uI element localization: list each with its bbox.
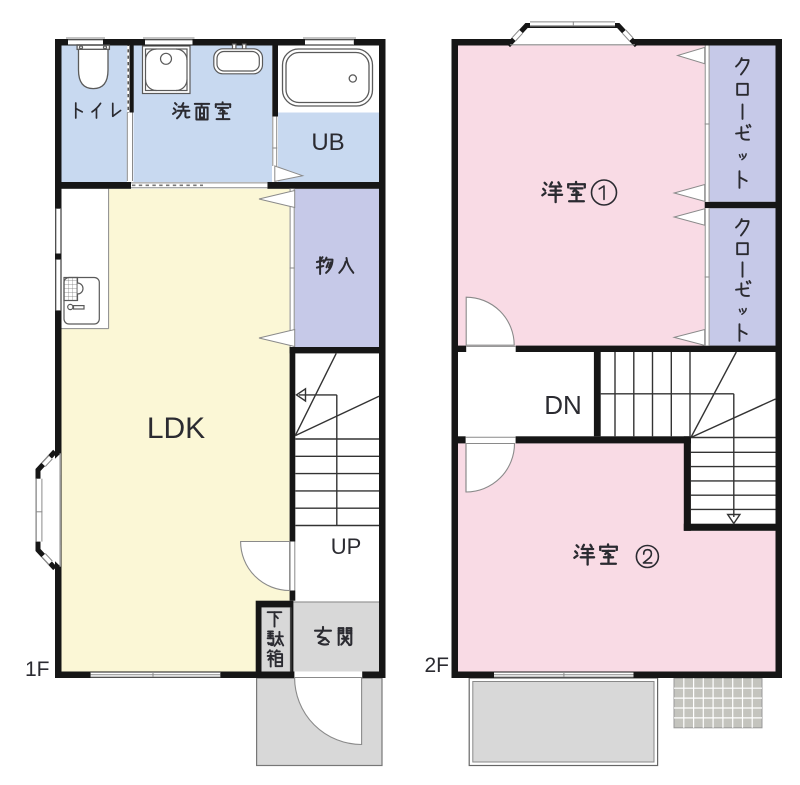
- svg-text:DN: DN: [544, 390, 582, 420]
- svg-text:UB: UB: [311, 129, 344, 156]
- svg-text:LDK: LDK: [147, 412, 205, 445]
- svg-text:1F: 1F: [25, 658, 50, 681]
- svg-text:2F: 2F: [425, 654, 450, 677]
- svg-text:UP: UP: [331, 534, 362, 559]
